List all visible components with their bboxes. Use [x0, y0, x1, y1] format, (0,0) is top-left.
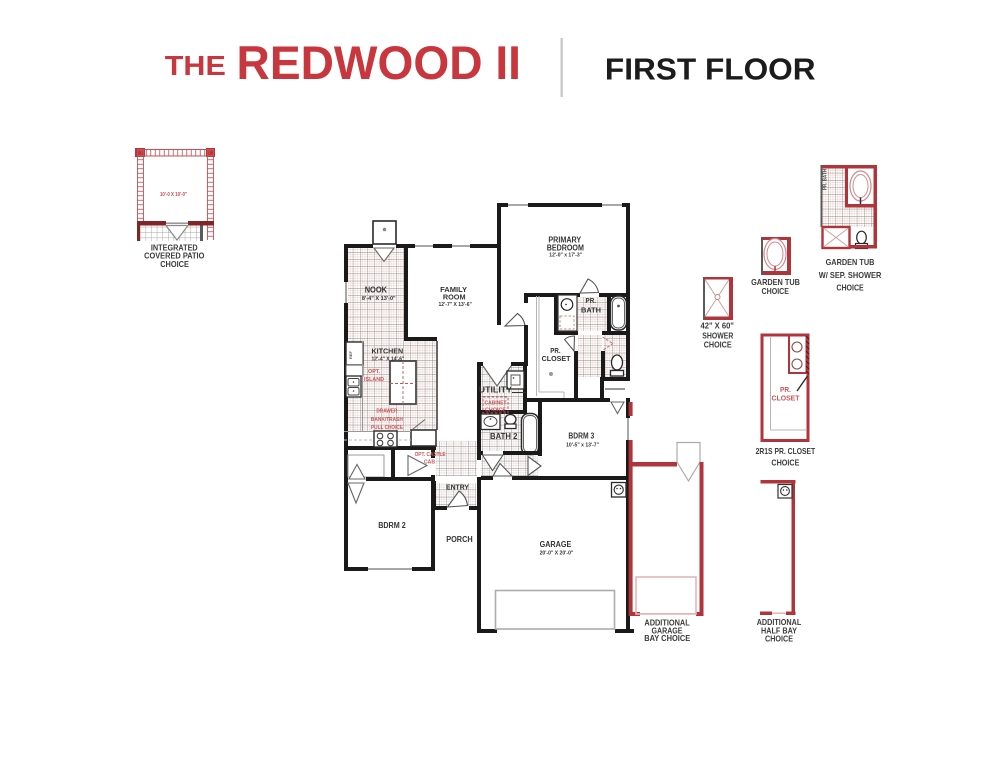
svg-text:42" X 60": 42" X 60": [701, 322, 734, 331]
svg-text:CHOICE: CHOICE: [771, 459, 799, 468]
svg-text:THE: THE: [165, 50, 226, 81]
svg-text:12'-7" X 13'-6": 12'-7" X 13'-6": [439, 302, 473, 308]
svg-text:PULL CHOICE: PULL CHOICE: [371, 425, 403, 431]
svg-text:10'-0 X 10'-0": 10'-0 X 10'-0": [160, 192, 187, 198]
svg-text:DRAWER: DRAWER: [376, 409, 398, 415]
svg-text:10'-5" x 13'-7": 10'-5" x 13'-7": [566, 442, 600, 448]
svg-text:BATH: BATH: [581, 306, 601, 315]
svg-text:PR. BATH: PR. BATH: [823, 169, 829, 190]
svg-text:OPT.: OPT.: [368, 369, 380, 375]
svg-text:GARDEN TUB: GARDEN TUB: [751, 278, 800, 287]
svg-text:PR.: PR.: [586, 296, 597, 305]
svg-text:REDWOOD II: REDWOOD II: [237, 36, 522, 89]
svg-text:12'-4" X 14'-6": 12'-4" X 14'-6": [372, 356, 406, 362]
svg-text:CHOICE: CHOICE: [765, 634, 793, 643]
svg-text:GARDEN TUB: GARDEN TUB: [826, 258, 875, 267]
svg-text:8'-4" X 13'-0": 8'-4" X 13'-0": [362, 296, 396, 302]
svg-text:SHOWER: SHOWER: [702, 332, 733, 341]
svg-text:GARAGE: GARAGE: [540, 540, 572, 549]
svg-text:ROOM: ROOM: [443, 293, 466, 302]
svg-text:REF: REF: [348, 350, 353, 359]
svg-text:BDRM 3: BDRM 3: [568, 432, 594, 441]
svg-text:KITCHEN: KITCHEN: [372, 347, 404, 356]
svg-text:ENTRY: ENTRY: [446, 482, 469, 491]
svg-text:W/ SEP. SHOWER: W/ SEP. SHOWER: [819, 271, 882, 280]
svg-text:FIRST FLOOR: FIRST FLOOR: [605, 52, 816, 87]
svg-text:BATH 2: BATH 2: [490, 432, 518, 441]
svg-text:BANK/TRASH: BANK/TRASH: [371, 417, 403, 423]
svg-text:CHOICE: CHOICE: [160, 260, 189, 269]
svg-text:CLOSET: CLOSET: [772, 394, 801, 403]
svg-text:PORCH: PORCH: [446, 535, 473, 544]
svg-text:CLOSET: CLOSET: [542, 354, 571, 363]
svg-text:CHOICE: CHOICE: [485, 408, 506, 414]
svg-text:20'-0" X 20'-0": 20'-0" X 20'-0": [540, 551, 574, 557]
svg-text:CAB: CAB: [424, 459, 435, 465]
svg-text:BAY CHOICE: BAY CHOICE: [644, 634, 690, 643]
svg-text:OPT. CASTLE: OPT. CASTLE: [415, 452, 446, 458]
svg-text:CABINET: CABINET: [485, 401, 507, 407]
svg-text:2R1S PR. CLOSET: 2R1S PR. CLOSET: [756, 447, 816, 456]
svg-text:BDRM 2: BDRM 2: [378, 521, 406, 530]
svg-text:CHOICE: CHOICE: [762, 287, 790, 296]
svg-text:12'-0" x 17'-3": 12'-0" x 17'-3": [549, 252, 582, 258]
svg-text:ISLAND: ISLAND: [364, 377, 384, 383]
svg-text:UTILITY: UTILITY: [479, 386, 513, 395]
svg-text:NOOK: NOOK: [365, 286, 388, 295]
svg-text:CHOICE: CHOICE: [836, 284, 864, 293]
svg-text:CHOICE: CHOICE: [704, 341, 732, 350]
svg-text:BEDROOM: BEDROOM: [547, 243, 584, 252]
